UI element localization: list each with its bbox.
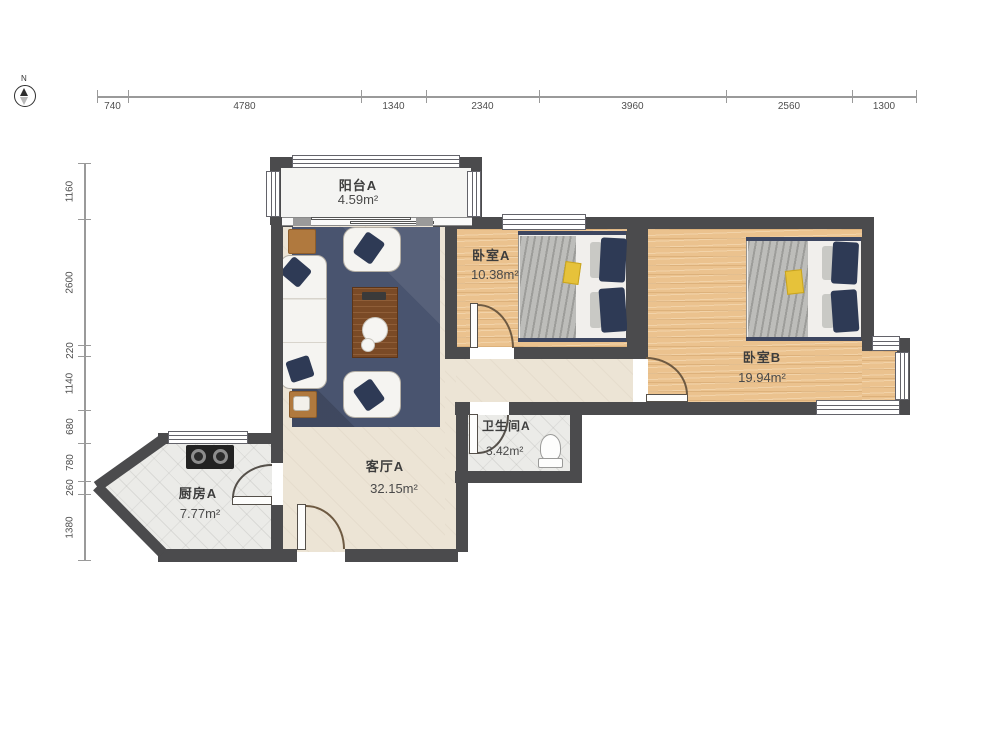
compass-north-label: N: [21, 74, 27, 83]
wall-kitchen-bottom: [158, 549, 283, 562]
bedroom-b-pillow-2: [831, 289, 860, 333]
bedroom-b-throw: [785, 269, 804, 295]
balcony-window-left: [266, 171, 280, 217]
balcony-slider-block-right: [416, 218, 433, 226]
top-dim-4780: 4780: [128, 101, 361, 112]
compass-needle-north: [20, 88, 28, 96]
bedroom-a-bed-frame-top: [518, 231, 632, 235]
top-dim-2340: 2340: [426, 101, 539, 112]
side-table-top: [288, 229, 316, 254]
balcony-window-right: [467, 171, 481, 217]
top-dim-2560: 2560: [726, 101, 852, 112]
bedroom-a-pillow-2: [598, 287, 627, 333]
wall-living-left-upper: [271, 218, 283, 463]
stove-burner-left: [191, 449, 206, 464]
wall-living-left-lower: [271, 505, 283, 552]
wall-bedroom-b-right-upper: [862, 229, 874, 345]
bedroom-b-bed-frame-bottom: [746, 337, 868, 341]
bedroom-b-floor-step: [862, 351, 897, 402]
hallway-floor: [456, 359, 633, 402]
bathroom-door-leaf: [469, 414, 478, 454]
living-room-area: 32.15m²: [344, 481, 444, 496]
entry-door-leaf: [297, 504, 306, 550]
living-room-label: 客厅A: [335, 456, 435, 475]
bedroom-b-bottom-window: [816, 400, 900, 415]
bedroom-b-right-window: [895, 352, 909, 400]
wall-bedroom-divider: [627, 229, 648, 359]
bedroom-a-blanket: [520, 236, 576, 338]
balcony-window-top: [292, 155, 460, 168]
bedroom-a-bed-frame-bottom: [518, 338, 632, 342]
balcony-area: 4.59m²: [308, 192, 408, 207]
bedroom-a-throw: [563, 261, 582, 285]
wall-bathroom-bottom: [455, 471, 582, 483]
left-dim-1140: 1140: [58, 356, 82, 410]
wall-bedroom-a-bottom-left: [445, 347, 470, 359]
bedroom-b-pillow-1: [831, 241, 859, 284]
top-dim-1340: 1340: [361, 101, 426, 112]
living-room-floor-strip: [445, 359, 456, 550]
kitchen-label: 厨房A: [148, 483, 248, 502]
bedroom-b-area: 19.94m²: [712, 370, 812, 385]
bedroom-b-step-window: [872, 336, 900, 351]
balcony-slider-block-left: [293, 218, 311, 226]
left-dim-780: 780: [58, 443, 82, 481]
bathroom-label: 卫生间A: [482, 417, 531, 434]
left-ruler-line: [84, 163, 86, 560]
bedroom-a-label: 卧室A: [472, 245, 510, 264]
top-ruler-line: [97, 96, 916, 98]
bedroom-b-door-leaf: [646, 394, 688, 402]
bedroom-b-label: 卧室B: [712, 347, 812, 366]
top-dim-740: 740: [97, 101, 128, 112]
left-dim-260: 260: [58, 481, 82, 494]
bedroom-a-window: [502, 214, 586, 230]
kitchen-window: [168, 431, 248, 444]
wall-living-bottom-right: [345, 549, 458, 562]
compass: N: [12, 74, 38, 112]
floor-plan: N 740 4780 1340 2340 3960 2560 1300 1160…: [0, 0, 1000, 750]
top-dim-3960: 3960: [539, 101, 726, 112]
basket: [293, 396, 310, 411]
bathroom-area: 3.42m²: [486, 444, 523, 458]
stove-burner-right: [213, 449, 228, 464]
left-dim-2600: 2600: [58, 219, 82, 345]
compass-needle-south: [20, 97, 28, 105]
left-dim-220: 220: [58, 345, 82, 356]
bedroom-a-pillow-1: [599, 237, 627, 282]
bedroom-a-area: 10.38m²: [471, 267, 519, 282]
balcony-slider-panel-1: [311, 217, 411, 220]
left-dim-1380: 1380: [58, 494, 82, 560]
left-dim-680: 680: [58, 410, 82, 443]
toilet-bowl: [540, 434, 561, 461]
coffee-table-tray: [362, 292, 386, 300]
left-dim-1160: 1160: [58, 163, 82, 219]
bedroom-a-door-leaf: [470, 303, 478, 348]
wall-living-bedroom-a-divider: [445, 218, 457, 359]
coffee-table-plate-small: [361, 338, 375, 352]
left-ruler-tick: [78, 560, 91, 561]
top-dim-1300: 1300: [852, 101, 916, 112]
toilet-tank: [538, 458, 563, 468]
kitchen-area: 7.77m²: [150, 506, 250, 521]
top-ruler-tick: [916, 90, 917, 103]
